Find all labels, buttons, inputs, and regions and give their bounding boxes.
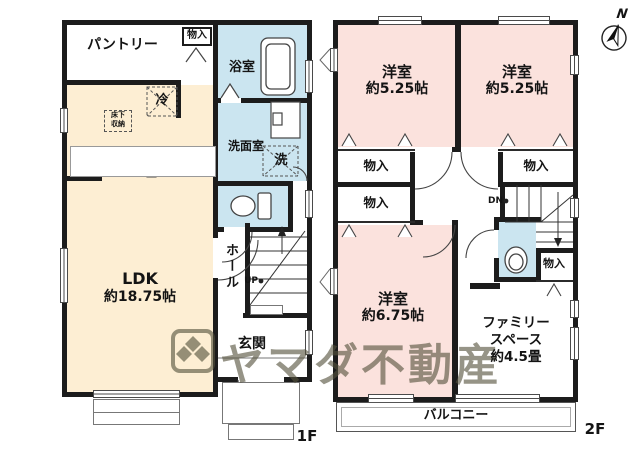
door-arc (466, 230, 494, 258)
room-label-closet-c: 物入 (346, 196, 406, 210)
room-label-bedroom2-size: 約5.25帖 (467, 82, 567, 98)
label-balcony: バルコニー (396, 409, 516, 424)
floor1-label: 1F (294, 428, 320, 445)
room-label-bedroom1-size: 約5.25帖 (347, 82, 447, 98)
room-label-family-line3: 約4.5畳 (468, 350, 564, 365)
room-label-closet-1f: 物入 (182, 30, 212, 41)
label-washer: 洗 (269, 154, 293, 169)
label-fridge: 冷 (150, 94, 174, 109)
room-label-bedroom1-name: 洋室 (347, 64, 447, 81)
label-underfloor-top: 床下 (104, 112, 132, 120)
room-label-ldk-name: LDK (95, 270, 185, 288)
stairs-2f (505, 185, 573, 242)
room-label-family-line2: スペース (468, 333, 564, 348)
folding-door-icon (186, 48, 206, 62)
porch-step (228, 424, 294, 440)
up-dot (259, 279, 264, 284)
room-label-ldk-size: 約18.75帖 (95, 290, 185, 306)
room-label-bath: 浴室 (221, 61, 263, 76)
folding-door-icon (221, 84, 239, 98)
watermark-logo (170, 328, 216, 374)
toilet1-icon (231, 193, 271, 219)
room-label-bedroom3-name: 洋室 (345, 291, 441, 308)
room-label-closet-d: 物入 (534, 258, 574, 270)
toilet2-icon (505, 247, 527, 273)
label-underfloor-bottom: 収納 (104, 121, 132, 129)
stairs-1f (250, 231, 307, 305)
room-label-entrance: 玄関 (226, 337, 278, 353)
window-swing-marks (320, 49, 330, 294)
room-label-family-line1: ファミリー (468, 316, 564, 331)
room-label-closet-a: 物入 (346, 159, 406, 173)
floor2-label: 2F (581, 421, 609, 438)
washbasin-icon (271, 102, 300, 138)
room-label-closet-b: 物入 (506, 159, 566, 173)
room-label-pantry: パントリー (70, 38, 175, 54)
floor-plan-canvas: ヤマダ不動産 パントリー 物入 浴室 洗面室 洗 冷 床下 収納 LDK 約18… (0, 0, 640, 469)
label-up: UP (234, 276, 258, 286)
room-label-bedroom2-name: 洋室 (467, 64, 567, 81)
bathtub-icon (261, 38, 295, 95)
door-arc (415, 152, 452, 189)
compass-north-label: N (613, 8, 631, 23)
dn-dot (504, 199, 509, 204)
room-label-bedroom3-size: 約6.75帖 (345, 309, 441, 325)
room-label-washroom: 洗面室 (220, 140, 272, 153)
stairs-landing (250, 305, 283, 315)
up-arrow-icon (278, 226, 286, 236)
door-arc (461, 152, 498, 189)
kitchen-counter (70, 146, 216, 177)
ldk-terrace-step-line (93, 412, 180, 413)
door-arc (423, 225, 455, 257)
label-dn: DN (481, 196, 503, 206)
